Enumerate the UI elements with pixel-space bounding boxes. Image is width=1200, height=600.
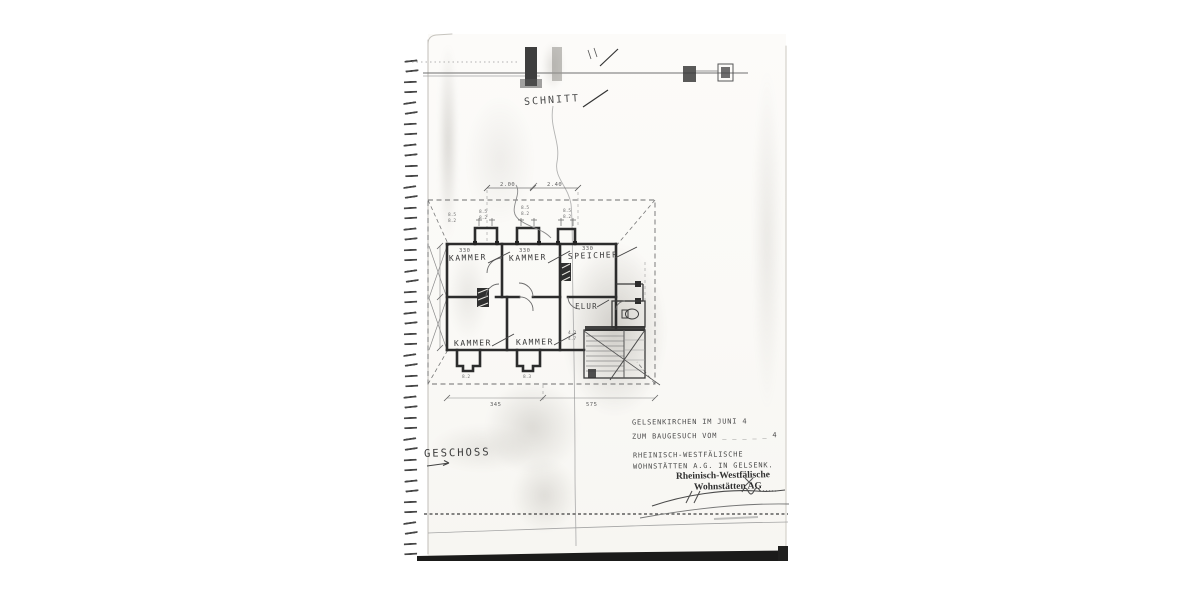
dimension-marks: 2.00 2.40 345 575 8.5 8.2 8.5 8.2 8.5 8.… — [437, 182, 658, 408]
request-line: ZUM BAUGESUCH VOM _ _ _ _ _ 4 — [632, 431, 777, 441]
room-label-kammer-bottom-mid: KAMMER — [516, 337, 554, 347]
room-dim-top-left: 330 — [459, 248, 470, 254]
dim-stack: 8.5 — [448, 212, 456, 218]
page-shadow-bar — [417, 546, 788, 561]
room-label-kammer-bottom-left: KAMMER — [454, 338, 492, 348]
room-label-flur: FLUR — [575, 302, 598, 311]
geschoss-arrow — [427, 461, 449, 467]
dim-stack: 8.5 — [479, 209, 487, 215]
dim-dormer: 8.3 — [523, 374, 531, 380]
dim-stack: 8.2 — [521, 211, 529, 217]
stamp-line2: Wohnstätten AG — [694, 481, 762, 492]
company-line2: WOHNSTÄTTEN A.G. IN GELSENK. — [633, 461, 773, 470]
dim-bottom-right: 575 — [586, 402, 597, 408]
dim-stack: 8.2 — [448, 218, 456, 224]
floor-label: GESCHOSS — [424, 446, 491, 460]
date-line: GELSENKIRCHEN IM JUNI 4 — [632, 417, 747, 426]
room-dim-top-mid: 330 — [519, 248, 530, 254]
dim-dormer: 8.2 — [462, 374, 470, 380]
room-label-kammer-top-left: KAMMER — [449, 253, 487, 263]
chimney-blocks — [477, 263, 571, 307]
fold-crease — [552, 106, 576, 546]
floorplan-drawing: 2.00 2.40 345 575 8.5 8.2 8.5 8.2 8.5 8.… — [0, 0, 1200, 600]
dim-bottom-left: 345 — [490, 402, 501, 408]
company-line1: RHEINISCH-WESTFÄLISCHE — [633, 450, 743, 459]
dim-stack: 8.5 — [563, 208, 571, 214]
scanned-page-canvas: 2.00 2.40 345 575 8.5 8.2 8.5 8.2 8.5 8.… — [0, 0, 1200, 600]
dim-stack: 8.2 — [479, 215, 487, 221]
stamp-line1: Rheinisch-Westfälische — [676, 470, 770, 482]
dim-top-left: 2.00 — [500, 182, 515, 188]
dim-stack: 8.5 — [521, 205, 529, 211]
room-label-kammer-top-mid: KAMMER — [509, 253, 547, 263]
ground-lines — [424, 514, 788, 533]
dim-stack: 8.2 — [563, 214, 571, 220]
room-dim-speicher: 330 — [582, 246, 593, 252]
dim-top-right: 2.40 — [547, 182, 562, 188]
